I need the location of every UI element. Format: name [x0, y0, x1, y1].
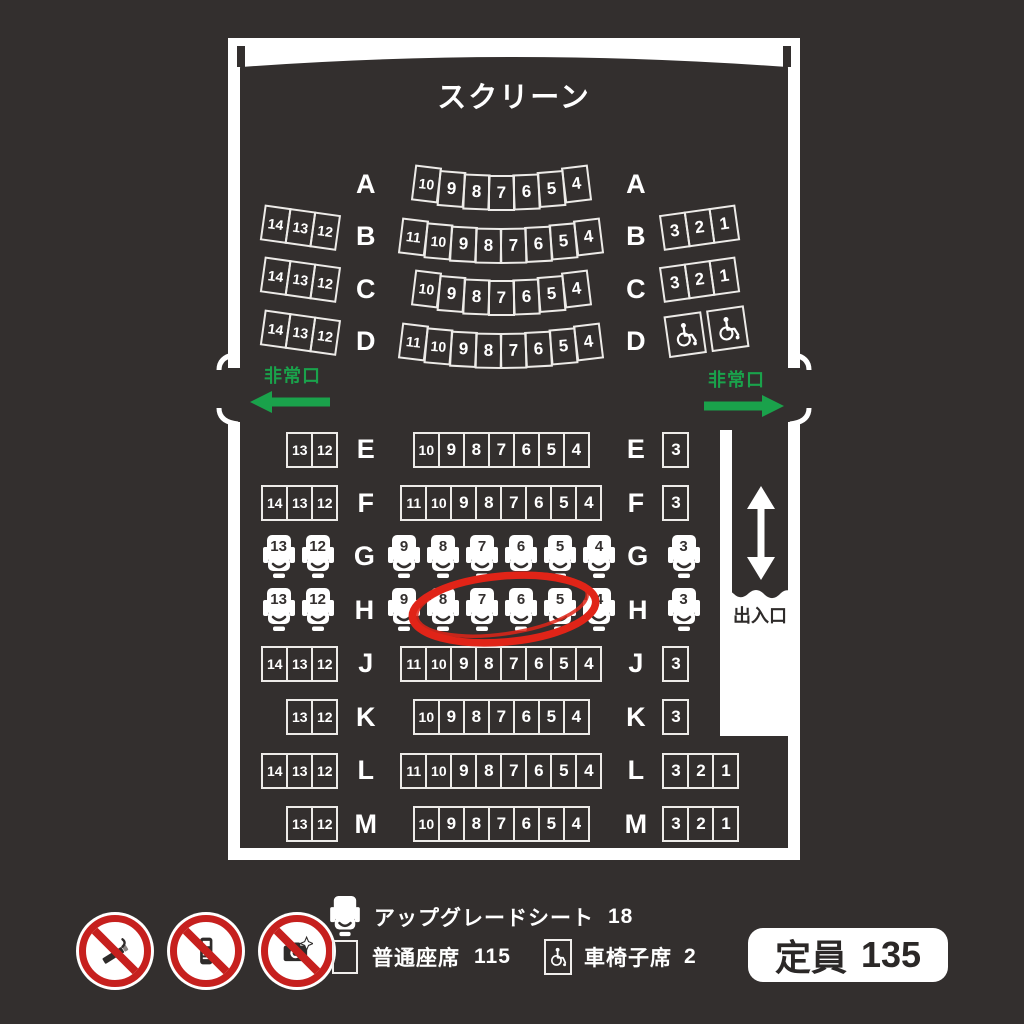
emergency-exit-right: 非常口 — [702, 366, 798, 416]
seat-L12[interactable]: 12 — [311, 753, 338, 789]
seat-M3[interactable]: 3 — [662, 806, 689, 842]
seat-F4[interactable]: 4 — [575, 485, 602, 521]
row-label-right-C: C — [609, 274, 662, 305]
seat-M4[interactable]: 4 — [563, 806, 590, 842]
seat-E12[interactable]: 12 — [311, 432, 338, 468]
seat-K6[interactable]: 6 — [513, 699, 540, 735]
seat-row-M: 1312M10987654M321 — [240, 798, 800, 852]
seat-B1[interactable]: 1 — [709, 204, 741, 243]
seat-F10[interactable]: 10 — [425, 485, 452, 521]
legend-upgrade: アップグレードシート 18 — [330, 896, 633, 937]
theater-seat-map: スクリーン 非常口 非常口 出入口 A10987654A141312B11109… — [0, 0, 1024, 1024]
seat-L7[interactable]: 7 — [500, 753, 527, 789]
seat-L4[interactable]: 4 — [575, 753, 602, 789]
row-label-left-K: K — [338, 702, 393, 733]
seat-L8[interactable]: 8 — [475, 753, 502, 789]
row-label-right-B: B — [609, 221, 662, 252]
seat-E9[interactable]: 9 — [438, 432, 465, 468]
row-label-left-A: A — [338, 169, 393, 200]
seat-C12[interactable]: 12 — [310, 264, 342, 303]
seat-row-E: 1312E10987654E3 — [240, 423, 800, 477]
wall-left-lower — [228, 422, 240, 860]
seat-K7[interactable]: 7 — [488, 699, 515, 735]
row-label-right-G: G — [612, 541, 664, 572]
row-label-left-G: G — [337, 541, 391, 572]
seat-M13[interactable]: 13 — [286, 806, 313, 842]
row-label-right-J: J — [609, 648, 662, 679]
seat-F8[interactable]: 8 — [475, 485, 502, 521]
seat-row-B: 141312B1110987654B321 — [240, 211, 800, 264]
legend-wheelchair-count: 2 — [684, 945, 697, 969]
legend-upgrade-label: アップグレードシート — [374, 902, 594, 932]
entrance-label: 出入口 — [720, 602, 800, 628]
seat-L1[interactable]: 1 — [712, 753, 739, 789]
no-camera-icon — [261, 915, 333, 987]
seat-F11[interactable]: 11 — [400, 485, 427, 521]
screen-label: スクリーン — [228, 74, 800, 116]
seat-M9[interactable]: 9 — [438, 806, 465, 842]
red-circle-annotation — [404, 562, 610, 658]
row-label-right-D: D — [609, 326, 662, 357]
seat-L14[interactable]: 14 — [261, 753, 288, 789]
seat-L9[interactable]: 9 — [450, 753, 477, 789]
seat-row-F: 141312F1110987654F3 — [240, 477, 800, 531]
prohibition-icons — [79, 915, 333, 987]
row-label-left-J: J — [338, 648, 393, 679]
exit-arrow-right-icon — [702, 394, 784, 418]
legend-normal: 普通座席 115 — [332, 940, 511, 974]
seat-F13[interactable]: 13 — [286, 485, 313, 521]
seat-E13[interactable]: 13 — [286, 432, 313, 468]
seat-L2[interactable]: 2 — [687, 753, 714, 789]
seat-rows-upper: A10987654A141312B1110987654B321141312C10… — [240, 158, 800, 368]
seat-G3-upgrade[interactable]: 3 — [668, 535, 700, 579]
seat-C1[interactable]: 1 — [709, 257, 741, 296]
seat-H13-upgrade[interactable]: 13 — [263, 588, 295, 632]
seat-E3[interactable]: 3 — [662, 432, 689, 468]
seat-row-A: A10987654A — [240, 158, 800, 211]
seat-K9[interactable]: 9 — [438, 699, 465, 735]
legend-normal-label: 普通座席 — [372, 942, 460, 972]
seat-G13-upgrade[interactable]: 13 — [263, 535, 295, 579]
row-label-right-H: H — [612, 595, 664, 626]
legend-normal-count: 115 — [474, 945, 511, 969]
seat-M12[interactable]: 12 — [311, 806, 338, 842]
seat-F3[interactable]: 3 — [662, 485, 689, 521]
row-label-left-E: E — [338, 434, 393, 465]
seat-L13[interactable]: 13 — [286, 753, 313, 789]
seat-C8[interactable]: 8 — [462, 279, 490, 316]
seat-M2[interactable]: 2 — [687, 806, 714, 842]
legend-wheelchair: 車椅子席 2 — [544, 939, 697, 975]
seat-B8[interactable]: 8 — [475, 227, 503, 263]
wall-break-left-top — [216, 352, 240, 372]
seat-L11[interactable]: 11 — [400, 753, 427, 789]
seat-E7[interactable]: 7 — [488, 432, 515, 468]
seat-row-K: 1312K10987654K3 — [240, 691, 800, 745]
seat-L5[interactable]: 5 — [550, 753, 577, 789]
seat-F9[interactable]: 9 — [450, 485, 477, 521]
row-label-left-L: L — [338, 755, 393, 786]
seat-D-wheelchair[interactable] — [707, 305, 750, 352]
seat-E5[interactable]: 5 — [538, 432, 565, 468]
row-label-right-E: E — [609, 434, 662, 465]
seat-K12[interactable]: 12 — [311, 699, 338, 735]
seat-F7[interactable]: 7 — [500, 485, 527, 521]
row-label-left-F: F — [338, 488, 393, 519]
legend-upgrade-count: 18 — [608, 905, 633, 929]
seat-J12[interactable]: 12 — [311, 646, 338, 682]
seat-K10[interactable]: 10 — [413, 699, 440, 735]
capacity-value: 135 — [861, 934, 921, 976]
seat-K5[interactable]: 5 — [538, 699, 565, 735]
seat-M6[interactable]: 6 — [513, 806, 540, 842]
seat-K13[interactable]: 13 — [286, 699, 313, 735]
wheelchair-icon — [714, 314, 743, 343]
seat-B12[interactable]: 12 — [310, 211, 342, 250]
legend-wheelchair-label: 車椅子席 — [584, 942, 672, 972]
upgrade-seat-icon — [330, 896, 360, 937]
seat-B4[interactable]: 4 — [573, 217, 604, 256]
seat-F14[interactable]: 14 — [261, 485, 288, 521]
row-label-left-D: D — [338, 326, 393, 357]
exit-arrow-left-icon — [250, 390, 332, 414]
no-smoking-icon — [79, 915, 151, 987]
emergency-exit-right-label: 非常口 — [708, 366, 798, 392]
seat-M5[interactable]: 5 — [538, 806, 565, 842]
seat-D-wheelchair[interactable] — [664, 311, 707, 358]
wheelchair-icon — [671, 320, 700, 349]
row-label-left-M: M — [338, 809, 393, 840]
seat-A7[interactable]: 7 — [488, 175, 515, 211]
seat-D12[interactable]: 12 — [310, 316, 342, 355]
row-label-left-B: B — [338, 221, 393, 252]
seat-E10[interactable]: 10 — [413, 432, 440, 468]
seat-F5[interactable]: 5 — [550, 485, 577, 521]
row-label-left-C: C — [338, 274, 393, 305]
seat-row-D: 141312D1110987654D — [240, 316, 800, 369]
seat-F6[interactable]: 6 — [525, 485, 552, 521]
seat-E6[interactable]: 6 — [513, 432, 540, 468]
row-label-left-H: H — [337, 595, 391, 626]
seat-K3[interactable]: 3 — [662, 699, 689, 735]
row-label-right-F: F — [609, 488, 662, 519]
seat-D8[interactable]: 8 — [475, 332, 503, 368]
wall-break-left-bottom — [216, 406, 240, 426]
seat-F12[interactable]: 12 — [311, 485, 338, 521]
seat-A8[interactable]: 8 — [462, 174, 490, 211]
seat-M7[interactable]: 7 — [488, 806, 515, 842]
seat-D4[interactable]: 4 — [573, 322, 604, 361]
seat-G12-upgrade[interactable]: 12 — [302, 535, 334, 579]
seat-C4[interactable]: 4 — [561, 270, 592, 309]
seat-C7[interactable]: 7 — [488, 280, 515, 316]
normal-seat-icon — [332, 940, 358, 974]
row-label-right-L: L — [609, 755, 662, 786]
seat-K4[interactable]: 4 — [563, 699, 590, 735]
seat-K8[interactable]: 8 — [463, 699, 490, 735]
capacity-label: 定員 — [775, 929, 847, 981]
seat-M8[interactable]: 8 — [463, 806, 490, 842]
seat-E4[interactable]: 4 — [563, 432, 590, 468]
seat-row-L: 141312L1110987654L321 — [240, 744, 800, 798]
seat-row-C: 141312C10987654C321 — [240, 263, 800, 316]
seat-H12-upgrade[interactable]: 12 — [302, 588, 334, 632]
seat-L10[interactable]: 10 — [425, 753, 452, 789]
seat-E8[interactable]: 8 — [463, 432, 490, 468]
seat-L6[interactable]: 6 — [525, 753, 552, 789]
seat-J13[interactable]: 13 — [286, 646, 313, 682]
seat-A4[interactable]: 4 — [561, 165, 592, 204]
row-label-right-M: M — [609, 809, 662, 840]
row-label-right-K: K — [609, 702, 662, 733]
seat-H3-upgrade[interactable]: 3 — [668, 588, 700, 632]
capacity-badge: 定員 135 — [748, 928, 948, 982]
seat-J3[interactable]: 3 — [662, 646, 689, 682]
seat-M10[interactable]: 10 — [413, 806, 440, 842]
emergency-exit-left: 非常口 — [250, 362, 346, 412]
wheelchair-seat-icon — [544, 939, 572, 975]
seat-M1[interactable]: 1 — [712, 806, 739, 842]
seat-J14[interactable]: 14 — [261, 646, 288, 682]
row-label-right-A: A — [609, 169, 662, 200]
no-mobile-phone-icon — [170, 915, 242, 987]
seat-L3[interactable]: 3 — [662, 753, 689, 789]
